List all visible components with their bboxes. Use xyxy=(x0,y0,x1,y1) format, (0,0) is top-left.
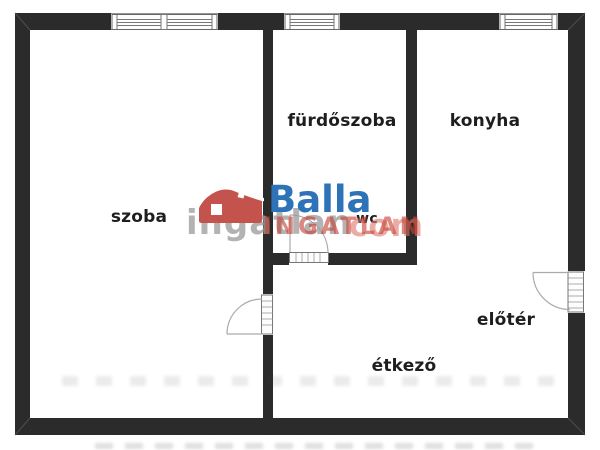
door-swing-arc xyxy=(227,299,262,334)
door-swing-arc xyxy=(290,215,328,253)
door-wc-icon xyxy=(290,215,329,263)
walls xyxy=(15,13,585,435)
floorplan-image: szoba fürdőszoba konyha wc előtér étkező… xyxy=(0,0,600,450)
door-entrance-icon xyxy=(533,271,587,313)
room-label-konyha: konyha xyxy=(450,111,521,131)
wall-wc-stub xyxy=(273,253,289,265)
wall-bath-kitchen-divider xyxy=(406,30,417,265)
wall-szoba-divider-lower xyxy=(263,335,273,418)
floorplan-drawing xyxy=(0,0,600,450)
wall-miter-seams xyxy=(15,13,585,435)
window-icon xyxy=(499,14,558,30)
wall-bottom xyxy=(15,418,585,435)
wall-right xyxy=(568,13,585,435)
wall-left xyxy=(15,13,30,435)
room-label-etkezo: étkező xyxy=(372,356,437,376)
door-swing-arc xyxy=(533,273,570,310)
room-label-wc: wc xyxy=(356,211,378,227)
wall-szoba-divider-upper xyxy=(263,30,273,294)
room-label-szoba: szoba xyxy=(111,207,167,227)
wall-wc-etkezo xyxy=(328,253,417,265)
door-szoba-icon xyxy=(227,294,274,335)
room-label-eloter: előtér xyxy=(477,310,535,330)
room-label-furdoszoba: fürdőszoba xyxy=(287,111,396,131)
window-icon xyxy=(284,14,340,30)
window-double-icon xyxy=(111,14,218,30)
